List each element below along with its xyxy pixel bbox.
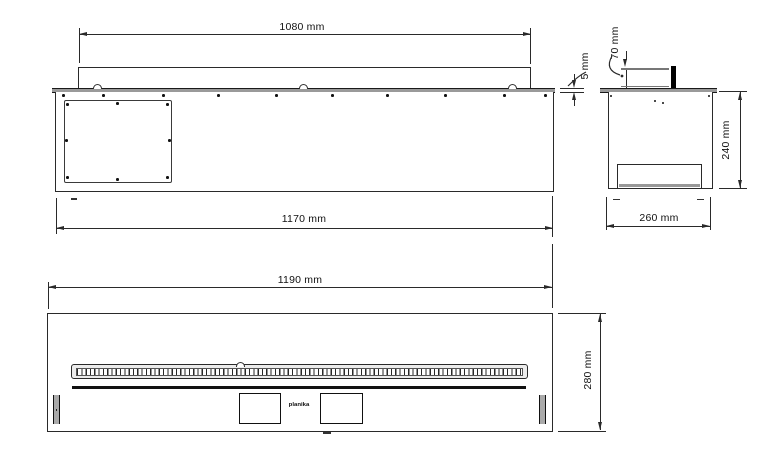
foot-mark: [697, 199, 704, 201]
dim-line-side-height: [740, 92, 741, 188]
screw-dot: [444, 94, 447, 97]
flange-bump-icon: [93, 84, 102, 89]
plan-junction-box: [239, 393, 281, 424]
foot-mark: [323, 432, 331, 434]
foot-mark: [71, 198, 77, 200]
panel-screw-dot: [116, 102, 119, 105]
screw-dot: [544, 94, 547, 97]
plan-junction-box: [320, 393, 363, 424]
arrowhead-icon: [56, 226, 64, 230]
arrowhead-icon: [738, 92, 742, 100]
screw-dot: [662, 102, 665, 105]
panel-screw-dot: [66, 103, 69, 106]
arrowhead-icon: [598, 314, 602, 322]
flange-bump-icon: [299, 84, 308, 89]
side-lid-top-line: [621, 68, 669, 70]
front-access-panel: [64, 100, 172, 183]
panel-screw-dot: [168, 139, 171, 142]
dim-line-front-bottom: [56, 228, 553, 229]
screw-dot: [162, 94, 165, 97]
dim-tail: [574, 99, 575, 106]
extension-line: [530, 28, 531, 64]
dim-label-front-body-width: 1170 mm: [254, 213, 354, 225]
panel-screw-dot: [116, 178, 119, 181]
dim-label-plan-width: 1190 mm: [250, 274, 350, 286]
side-lid-bottom-line: [621, 86, 669, 88]
screw-dot: [275, 94, 278, 97]
arrowhead-icon: [572, 80, 576, 88]
plan-bracket-right: [539, 395, 546, 424]
technical-drawing-canvas: 1080 mm 1170 mm 5 mm 70 mm: [0, 0, 784, 459]
arrowhead-icon: [545, 226, 553, 230]
panel-screw-dot: [166, 176, 169, 179]
screw-dot: [331, 94, 334, 97]
dim-label-side-height: 240 mm: [720, 118, 732, 162]
opening-inner-band: [619, 184, 700, 188]
screw-dot: [503, 94, 506, 97]
dim-line-side-depth: [606, 226, 710, 227]
extension-line: [552, 196, 553, 237]
arrowhead-icon: [702, 224, 710, 228]
screw-dot: [62, 94, 65, 97]
flange-bump-icon: [508, 84, 517, 89]
dim-line-plan-width: [48, 287, 552, 288]
dim-line-plan-depth: [600, 314, 601, 430]
extension-line: [558, 431, 606, 432]
panel-screw-dot: [65, 139, 68, 142]
screw-dot: [217, 94, 220, 97]
arrowhead-icon: [79, 32, 87, 36]
extension-line: [719, 91, 747, 92]
extension-line: [719, 188, 747, 189]
arrowhead-icon: [606, 224, 614, 228]
screw-dot: [386, 94, 389, 97]
plan-burner-slot-hatch: [76, 368, 523, 377]
plan-front-edge-line: [72, 386, 526, 389]
arrowhead-icon: [598, 422, 602, 430]
extension-line: [48, 282, 49, 309]
dim-label-front-top-width: 1080 mm: [252, 21, 352, 33]
leader-curve: [566, 70, 588, 90]
dim-label-side-depth: 260 mm: [609, 212, 709, 224]
side-sensor-bar: [671, 66, 676, 89]
extension-line: [79, 28, 80, 63]
screw-dot: [708, 95, 711, 98]
foot-mark: [613, 199, 620, 201]
screw-dot: [610, 95, 613, 98]
dim-tick: [560, 88, 584, 89]
brand-logo: planika: [281, 402, 317, 407]
dim-label-plan-depth: 280 mm: [582, 348, 594, 392]
arrowhead-icon: [623, 59, 627, 67]
screw-dot: [102, 94, 105, 97]
extension-line: [710, 197, 711, 230]
screw-dot: [654, 100, 657, 103]
dim-line-front-top: [79, 34, 531, 35]
panel-screw-dot: [166, 103, 169, 106]
panel-screw-dot: [66, 176, 69, 179]
arrowhead-icon: [738, 180, 742, 188]
side-bottom-opening: [617, 164, 702, 189]
arrowhead-icon: [544, 285, 552, 289]
arrowhead-icon: [48, 285, 56, 289]
leader-curve: [604, 54, 628, 80]
extension-line: [552, 244, 553, 308]
